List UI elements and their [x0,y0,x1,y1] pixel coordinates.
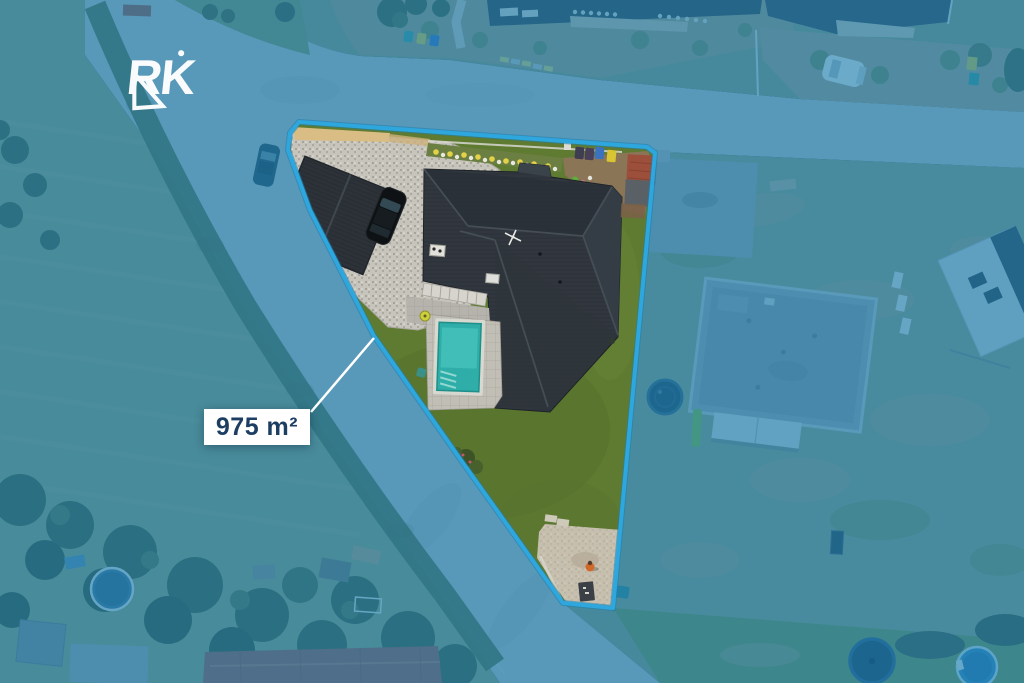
door-mat [578,581,595,601]
chimney [430,244,446,256]
area-label: 975 m² [204,409,310,445]
logo-dot [178,50,184,56]
swimming-pool [433,318,486,396]
area-label-text: 975 m² [216,413,298,442]
logo-text: RK [124,51,198,105]
real-estate-aerial-photo: 975 m² RK [0,0,1024,683]
roof-vent [486,273,500,283]
rk-logo: RK [116,28,228,116]
yellow-ball [420,311,430,321]
